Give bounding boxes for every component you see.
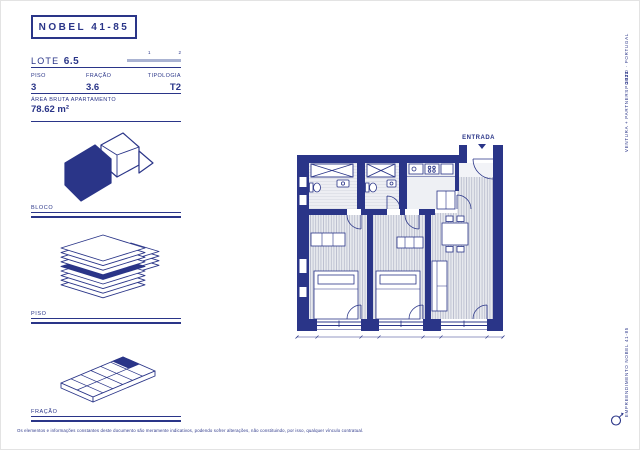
disclaimer-text: Os elementos e informações constantes de… xyxy=(17,428,385,433)
divider xyxy=(31,212,181,213)
field-fracao-value: 3.6 xyxy=(86,82,126,93)
entrance-label: ENTRADA xyxy=(462,135,495,141)
floor-plan-drawing: ENTRADA xyxy=(291,131,521,341)
divider xyxy=(31,420,181,422)
section-bloco-label: BLOCO xyxy=(31,205,53,211)
divider xyxy=(31,93,181,94)
lote-row: LOTE 6.5 1 2 xyxy=(31,51,181,67)
field-tipologia-label: TIPOLOGIA xyxy=(126,73,181,79)
divider xyxy=(31,67,181,68)
entrance-arrow-icon xyxy=(478,144,486,149)
field-fracao-label: FRAÇÃO xyxy=(86,73,126,79)
north-compass-icon xyxy=(607,409,627,429)
lote-value: 6.5 xyxy=(64,56,79,67)
area-label: ÁREA BRUTA APARTAMENTO xyxy=(31,97,116,103)
margin-footer-text: EMPREENDIMENTO NOBEL 41-85 xyxy=(624,327,629,417)
field-piso-label: PISO xyxy=(31,73,86,79)
field-piso: PISO 3 xyxy=(31,73,86,93)
floor-plan: ENTRADA xyxy=(291,131,521,341)
divider xyxy=(31,318,181,319)
field-piso-value: 3 xyxy=(31,82,86,93)
page-number-2: 2 xyxy=(178,50,181,55)
datasheet-page: NOBEL 41-85 LOTE 6.5 1 2 PISO 3 FRAÇÃO 3… xyxy=(0,0,640,450)
divider xyxy=(31,322,181,324)
margin-brand-text: VENTURA + PARTNERS xyxy=(624,89,629,152)
piso-isometric-icon xyxy=(31,225,181,307)
lote-label: LOTE xyxy=(31,56,59,66)
project-title-box: NOBEL 41-85 xyxy=(31,15,137,39)
field-fracao: FRAÇÃO 3.6 xyxy=(86,73,126,93)
divider xyxy=(31,121,181,122)
unit-fields: PISO 3 FRAÇÃO 3.6 TIPOLOGIA T2 xyxy=(31,73,181,93)
margin-year-text: 2023 xyxy=(624,71,629,84)
divider xyxy=(31,416,181,417)
field-tipologia-value: T2 xyxy=(126,82,181,93)
fracao-isometric-icon xyxy=(31,349,181,407)
divider xyxy=(31,216,181,218)
section-piso-label: PISO xyxy=(31,311,47,317)
section-fracao-label: FRAÇÃO xyxy=(31,409,58,415)
area-value: 78.62 m² xyxy=(31,104,69,115)
page-progress-bar xyxy=(127,59,181,62)
project-title: NOBEL 41-85 xyxy=(39,22,130,33)
page-indicator: 1 2 xyxy=(127,51,181,65)
bloco-isometric-icon xyxy=(31,125,181,203)
field-tipologia: TIPOLOGIA T2 xyxy=(126,73,181,93)
page-number-1: 1 xyxy=(148,50,151,55)
